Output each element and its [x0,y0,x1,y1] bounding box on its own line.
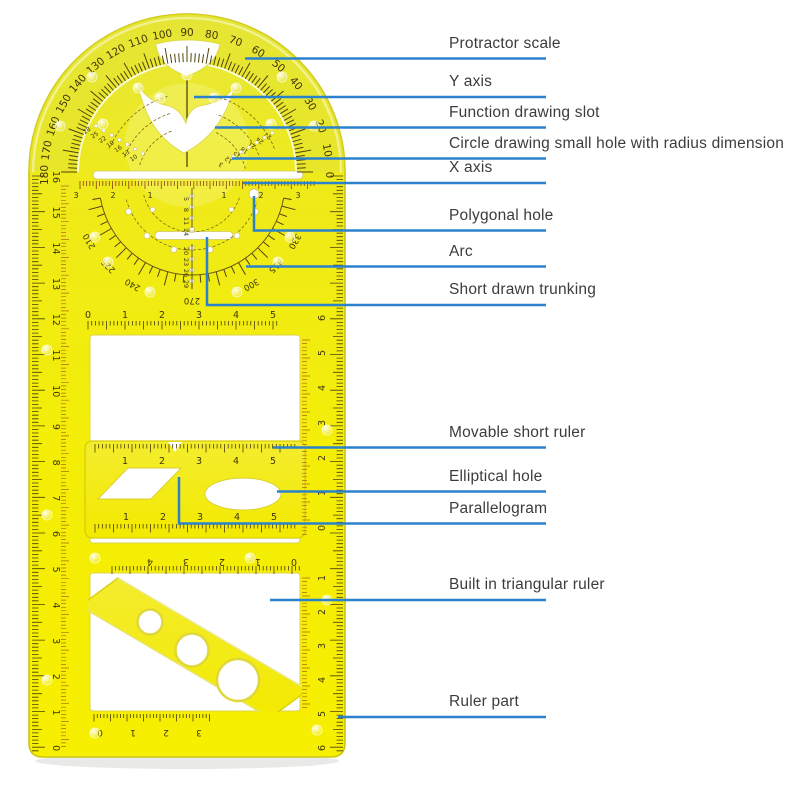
label-text: Arc [449,243,473,260]
svg-text:0: 0 [85,310,91,321]
label-short-drawn-trunking: Short drawn trunking [449,279,596,303]
svg-text:15: 15 [50,207,61,219]
svg-text:80: 80 [204,28,219,42]
svg-text:4: 4 [317,677,328,683]
svg-text:26: 26 [182,269,190,277]
strip-circle-medium [176,634,209,667]
svg-text:3: 3 [196,727,202,737]
label-circle-drawing-hole: Circle drawing small hole with radius di… [449,133,784,157]
label-text: Y axis [449,73,492,90]
svg-text:11: 11 [182,217,190,225]
svg-text:7: 7 [50,495,61,501]
svg-text:270: 270 [184,295,200,305]
svg-text:3: 3 [183,556,189,567]
svg-text:1: 1 [123,512,129,523]
svg-text:4: 4 [233,310,239,321]
svg-text:3: 3 [197,512,203,523]
label-x-axis: X axis [449,157,492,181]
label-text: Built in triangular ruler [449,576,605,593]
label-text: Movable short ruler [449,424,585,441]
svg-text:6: 6 [50,531,61,537]
svg-text:1: 1 [255,556,261,567]
label-ruler-part: Ruler part [449,691,519,715]
svg-text:1: 1 [147,191,152,200]
svg-text:180: 180 [39,165,51,185]
label-text: Ruler part [449,693,519,710]
label-protractor-scale: Protractor scale [449,33,561,57]
svg-text:90: 90 [180,27,193,39]
label-text: Polygonal hole [449,207,554,224]
svg-text:5: 5 [50,567,61,573]
svg-text:5: 5 [317,711,328,717]
svg-text:4: 4 [317,385,328,391]
svg-text:3: 3 [196,456,202,467]
svg-text:2: 2 [317,609,328,615]
svg-text:4: 4 [233,456,239,467]
svg-text:4: 4 [50,602,61,608]
strip-circle-large [217,659,259,701]
label-text: Elliptical hole [449,468,542,485]
svg-text:8: 8 [182,208,190,212]
label-text: Function drawing slot [449,104,600,121]
label-parallelogram: Parallelogram [449,498,547,522]
svg-text:2: 2 [317,455,328,461]
label-function-drawing-slot: Function drawing slot [449,102,600,126]
label-elliptical-hole: Elliptical hole [449,466,542,490]
svg-text:1: 1 [130,727,136,737]
svg-text:6: 6 [317,315,328,321]
label-polygonal-hole: Polygonal hole [449,205,554,229]
svg-text:5: 5 [270,456,276,467]
svg-text:2: 2 [163,727,169,737]
svg-text:10: 10 [320,143,334,158]
svg-text:2: 2 [159,456,165,467]
svg-text:23: 23 [182,258,190,266]
svg-text:16: 16 [50,171,61,183]
svg-text:5: 5 [271,512,277,523]
svg-text:2: 2 [258,191,263,200]
product-annotation-diagram: { "annotations": { "line_color": "#2a82c… [0,0,800,800]
svg-text:3: 3 [50,638,61,644]
svg-text:5: 5 [182,197,190,201]
svg-text:29: 29 [182,280,190,288]
svg-text:10: 10 [50,385,61,397]
svg-text:14: 14 [50,242,61,254]
label-text: Parallelogram [449,500,547,517]
label-text: Short drawn trunking [449,281,596,298]
svg-text:0: 0 [50,745,61,751]
label-arc: Arc [449,241,473,265]
svg-text:1: 1 [122,456,128,467]
svg-text:1: 1 [122,310,128,321]
label-movable-short-ruler: Movable short ruler [449,422,585,446]
svg-text:6: 6 [317,745,328,751]
ruler-illustration: 0102030405060708090100110120130140150160… [0,0,800,800]
svg-text:12: 12 [50,314,61,326]
svg-text:0: 0 [323,172,335,179]
svg-text:3: 3 [317,643,328,649]
svg-text:2: 2 [159,310,165,321]
svg-text:5: 5 [317,350,328,356]
svg-text:1: 1 [317,575,328,581]
svg-text:20: 20 [182,247,190,255]
label-text: Protractor scale [449,35,561,52]
x-axis-slot [93,171,303,179]
svg-text:1: 1 [50,709,61,715]
label-text: X axis [449,159,492,176]
svg-text:3: 3 [73,191,78,200]
svg-text:4: 4 [147,556,153,567]
svg-text:9: 9 [50,424,61,430]
elliptical-hole-shape [205,478,281,510]
strip-circle-small [138,610,163,635]
label-built-in-triangular-ruler: Built in triangular ruler [449,574,605,598]
svg-text:2: 2 [160,512,166,523]
label-text: Circle drawing small hole with radius di… [449,135,784,152]
svg-text:14: 14 [182,228,190,236]
svg-text:2: 2 [110,191,115,200]
svg-text:4: 4 [234,512,240,523]
short-trunking-slot [155,232,233,240]
svg-text:5: 5 [270,310,276,321]
svg-text:1: 1 [221,191,226,200]
svg-text:0: 0 [317,525,328,531]
svg-text:2: 2 [219,556,225,567]
svg-text:3: 3 [295,191,300,200]
label-y-axis: Y axis [449,71,492,95]
svg-text:3: 3 [196,310,202,321]
svg-text:13: 13 [50,278,61,290]
svg-text:8: 8 [50,460,61,466]
svg-text:0: 0 [291,556,297,567]
